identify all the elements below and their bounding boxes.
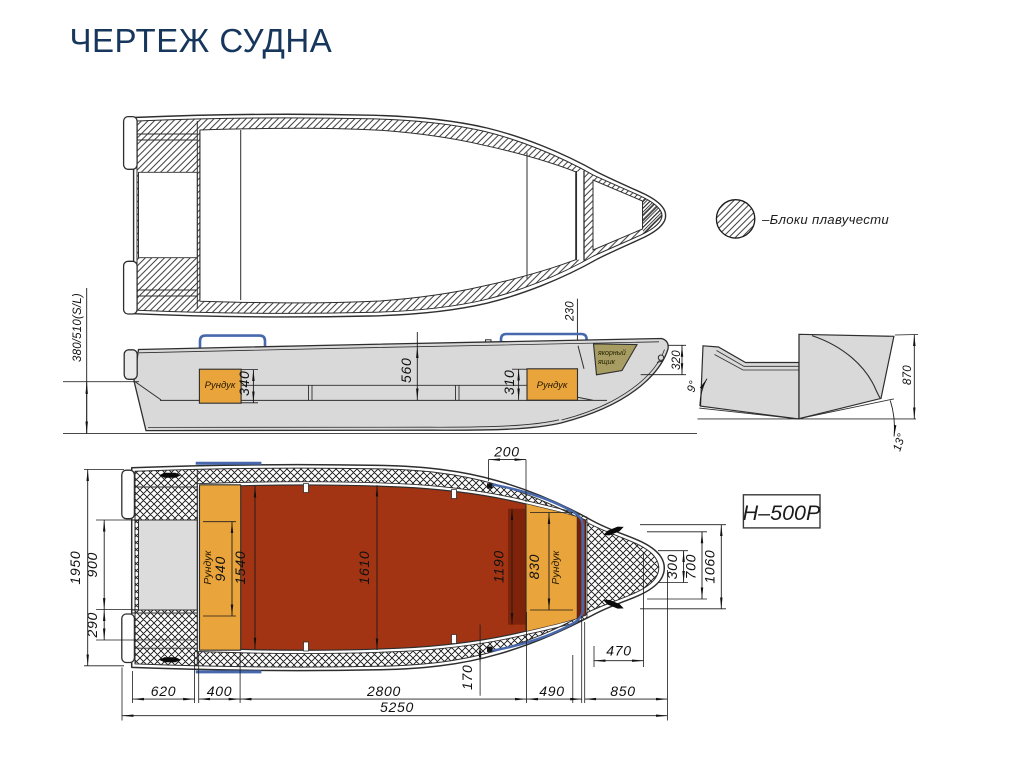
svg-text:560: 560 [398,358,414,383]
svg-text:якорный: якорный [597,349,626,357]
svg-text:870: 870 [902,365,914,385]
svg-text:490: 490 [539,683,564,699]
svg-text:Рундук: Рундук [205,380,236,391]
svg-text:2800: 2800 [366,683,401,699]
svg-text:1610: 1610 [356,551,372,585]
svg-text:400: 400 [207,683,232,699]
svg-text:1190: 1190 [491,550,507,583]
svg-text:Н–500Р: Н–500Р [743,501,821,525]
svg-text:700: 700 [683,554,699,579]
svg-text:470: 470 [606,643,631,659]
svg-text:290: 290 [84,612,100,638]
svg-text:900: 900 [84,552,100,577]
svg-text:Рундук: Рундук [202,550,214,585]
svg-text:1060: 1060 [702,550,718,584]
svg-text:310: 310 [501,370,517,395]
svg-text:830: 830 [526,554,542,579]
svg-text:320: 320 [671,350,683,370]
svg-text:200: 200 [493,444,519,460]
svg-text:5250: 5250 [380,699,414,715]
svg-text:170: 170 [459,665,475,690]
svg-text:1950: 1950 [67,551,83,585]
svg-text:Рундук: Рундук [550,550,562,585]
svg-text:ящик: ящик [597,359,616,366]
svg-text:850: 850 [610,683,635,699]
svg-text:620: 620 [151,683,176,699]
svg-text:1540: 1540 [232,551,248,585]
svg-text:380/510(S/L): 380/510(S/L) [72,293,84,362]
svg-text:230: 230 [565,301,577,322]
svg-text:ЧЕРТЕЖ СУДНА: ЧЕРТЕЖ СУДНА [70,22,333,59]
svg-text:Рундук: Рундук [537,380,568,391]
svg-text:940: 940 [212,556,228,581]
svg-text:340: 340 [236,371,252,396]
svg-text:300: 300 [664,554,680,579]
svg-text:–Блоки плавучести: –Блоки плавучести [761,212,889,227]
